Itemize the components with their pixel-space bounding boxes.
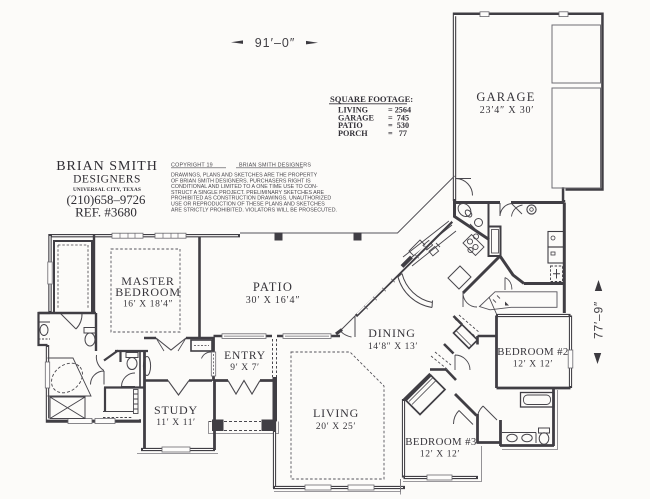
svg-text:BRIAN SMITH: BRIAN SMITH (56, 159, 158, 174)
svg-text:DESIGNERS: DESIGNERS (73, 174, 141, 186)
svg-text:STUDY: STUDY (154, 403, 198, 417)
svg-text:PORCH: PORCH (338, 129, 368, 138)
svg-text:BEDROOM #2: BEDROOM #2 (497, 346, 569, 358)
svg-text:12′ X 12′: 12′ X 12′ (420, 450, 460, 460)
svg-text:12′ X 12′: 12′ X 12′ (513, 360, 553, 370)
svg-text:16′ X 18′4″: 16′ X 18′4″ (123, 300, 173, 310)
svg-text:BEDROOM: BEDROOM (115, 285, 181, 299)
svg-text:ARE STRICTLY PROHIBITED. VIOL: ARE STRICTLY PROHIBITED. VIOLATORS WILL … (171, 207, 337, 213)
svg-text:SQUARE FOOTAGE:: SQUARE FOOTAGE: (330, 94, 413, 104)
svg-text:14′8″ X 13′: 14′8″ X 13′ (368, 342, 418, 352)
svg-text:LIVING: LIVING (313, 406, 359, 420)
svg-text:= 77: = 77 (388, 129, 407, 138)
svg-text:PATIO: PATIO (253, 280, 293, 294)
svg-text:DINING: DINING (368, 326, 415, 340)
svg-text:11′ X 11′: 11′ X 11′ (156, 418, 195, 428)
svg-text:GARAGE: GARAGE (476, 90, 535, 104)
svg-text:9′ X 7′: 9′ X 7′ (230, 363, 259, 373)
svg-text:30′ X 16′4″: 30′ X 16′4″ (246, 295, 301, 306)
svg-text:ENTRY: ENTRY (224, 350, 266, 362)
svg-text:REF. #3680: REF. #3680 (75, 205, 137, 220)
svg-text:20′ X 25′: 20′ X 25′ (316, 422, 356, 432)
svg-text:BEDROOM #3: BEDROOM #3 (405, 436, 477, 448)
svg-text:23′4″ X 30′: 23′4″ X 30′ (480, 105, 535, 116)
svg-text:77′–9″: 77′–9″ (592, 301, 606, 339)
svg-text:91′–0″: 91′–0″ (255, 36, 296, 50)
